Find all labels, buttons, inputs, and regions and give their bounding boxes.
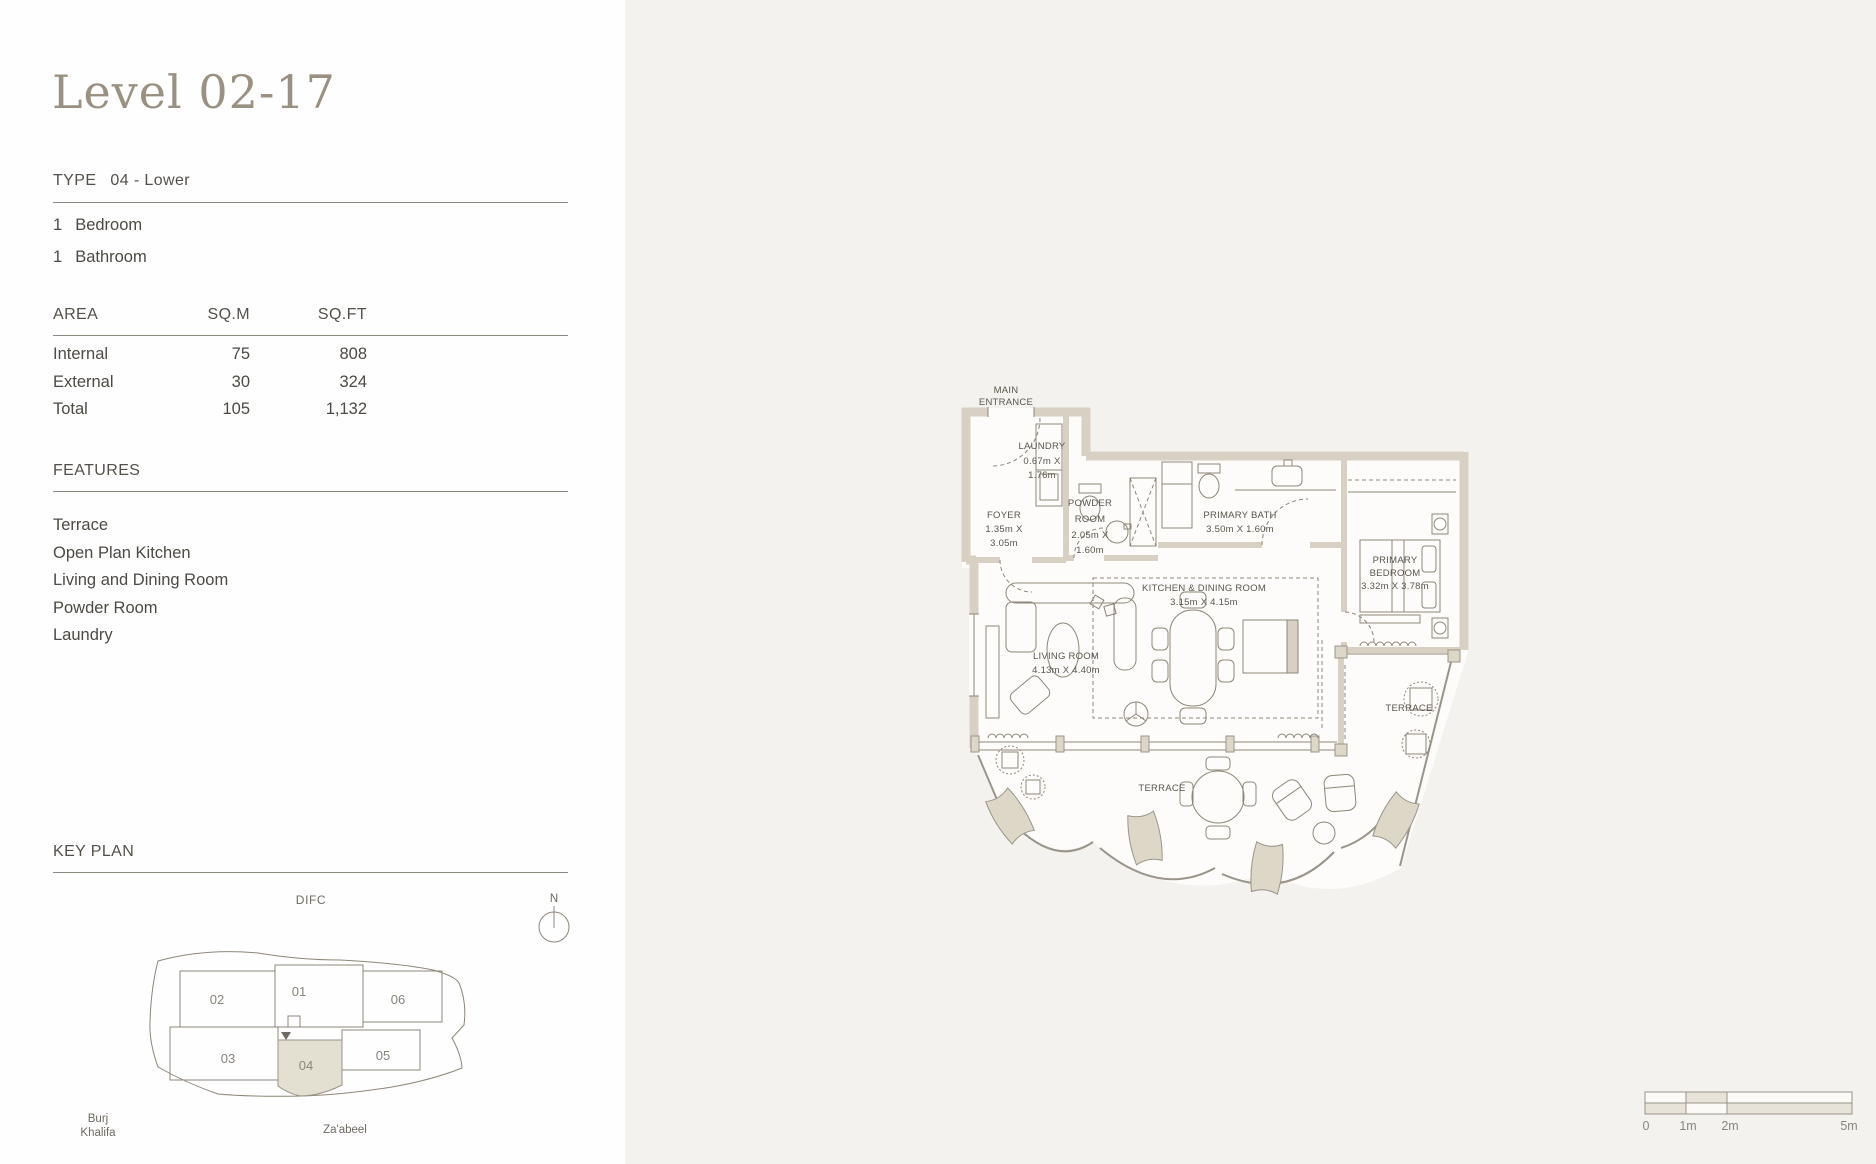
table-row: Internal 75 808 (53, 341, 367, 369)
area-col-label: AREA (53, 306, 167, 324)
foyer-dims: 3.05m (990, 538, 1018, 549)
unit-type-label: TYPE (53, 172, 96, 189)
area-table-header: AREA SQ.M SQ.FT (53, 306, 568, 336)
area-row-sqm: 105 (167, 396, 250, 424)
area-col-sqft: SQ.FT (250, 306, 367, 324)
key-plan-drawing: 02 01 06 03 04 05 (120, 945, 480, 1110)
area-col-sqm: SQ.M (167, 306, 250, 324)
area-row-sqft: 1,132 (250, 396, 367, 424)
primary-bath-label: PRIMARY BATH (1203, 510, 1276, 521)
scale-bar-labels: 0 1m 2m 5m (1643, 1119, 1858, 1133)
bathroom-label: Bathroom (75, 248, 147, 266)
main-entrance-label: MAIN (994, 385, 1019, 396)
room-counts: 1Bedroom 1Bathroom (53, 209, 147, 273)
laundry-dims: 0.67m X (1023, 456, 1061, 467)
page: Level 02-17 TYPE04 - Lower 1Bedroom 1Bat… (0, 0, 1876, 1164)
area-row-sqm: 30 (167, 369, 250, 397)
keyplan-unit-01: 01 (292, 984, 306, 999)
bedroom-label: Bedroom (75, 216, 142, 234)
terrace-main-label: TERRACE (1138, 783, 1185, 794)
difc-label: DIFC (261, 893, 361, 907)
keyplan-unit-04: 04 (299, 1058, 313, 1073)
laundry-dims: 1.76m (1028, 470, 1056, 481)
scale-label-2m: 2m (1721, 1119, 1738, 1133)
area-row-sqft: 808 (250, 341, 367, 369)
keyplan-unit-02: 02 (210, 992, 224, 1007)
features-header: FEATURES (53, 462, 568, 492)
list-item: Laundry (53, 622, 228, 650)
powder-room-dims: 2.05m X (1071, 530, 1109, 541)
area-row-sqft: 324 (250, 369, 367, 397)
scale-bar-segments (1645, 1092, 1852, 1114)
list-item: Terrace (53, 512, 228, 540)
bedroom-count: 1 (53, 216, 62, 234)
primary-bedroom-label: PRIMARY (1373, 555, 1418, 566)
scale-bar: 0 1m 2m 5m (1638, 1084, 1863, 1144)
list-item: Open Plan Kitchen (53, 540, 228, 568)
laundry-label: LAUNDRY (1019, 441, 1066, 452)
area-row-label: External (53, 369, 167, 397)
unit-marker-icon (281, 1032, 291, 1040)
table-row: Total 105 1,132 (53, 396, 367, 424)
primary-bath-dims: 3.50m X 1.60m (1206, 524, 1274, 535)
scale-label-0: 0 (1643, 1119, 1650, 1133)
foyer-dims: 1.35m X (985, 524, 1023, 535)
unit-type-value: 04 - Lower (110, 172, 190, 189)
table-row: External 30 324 (53, 369, 367, 397)
list-item: Living and Dining Room (53, 567, 228, 595)
bedroom-count-line: 1Bedroom (53, 209, 147, 241)
floor-plan: MAIN ENTRANCE LAUNDRY 0.67m X 1.76m FOYE… (955, 378, 1485, 908)
area-row-label: Total (53, 396, 167, 424)
landmark-burj-khalifa: Burj Khalifa (56, 1112, 140, 1140)
area-table-body: Internal 75 808 External 30 324 Total 10… (53, 341, 367, 424)
kitchen-label: KITCHEN & DINING ROOM (1142, 583, 1266, 594)
primary-bedroom-label: BEDROOM (1370, 568, 1421, 579)
living-room-dims: 4.13m X 4.40m (1032, 665, 1100, 676)
powder-room-label: ROOM (1075, 514, 1106, 525)
living-room-label: LIVING ROOM (1033, 651, 1099, 662)
landmark-line: Khalifa (56, 1126, 140, 1140)
area-row-label: Internal (53, 341, 167, 369)
page-title: Level 02-17 (52, 65, 336, 119)
primary-bedroom-dims: 3.32m X 3.78m (1361, 581, 1429, 592)
foyer-label: FOYER (987, 510, 1021, 521)
keyplan-unit-03: 03 (221, 1051, 235, 1066)
bathroom-count: 1 (53, 248, 62, 266)
powder-room-dims: 1.60m (1076, 545, 1104, 556)
scale-label-1m: 1m (1679, 1119, 1696, 1133)
north-letter: N (550, 893, 558, 905)
unit-type-row: TYPE04 - Lower (53, 172, 568, 203)
terrace-right-label: TERRACE (1385, 703, 1432, 714)
keyplan-header: KEY PLAN (53, 843, 568, 873)
landmark-line: Burj (56, 1112, 140, 1126)
west-window (969, 614, 979, 696)
area-row-sqm: 75 (167, 341, 250, 369)
scale-label-5m: 5m (1840, 1119, 1857, 1133)
bathroom-count-line: 1Bathroom (53, 241, 147, 273)
keyplan-unit-06: 06 (391, 992, 405, 1007)
landmark-zaabeel: Za'abeel (303, 1123, 387, 1137)
north-compass: N (524, 886, 584, 946)
main-entrance-label: ENTRANCE (979, 397, 1033, 408)
keyplan-unit-05: 05 (376, 1048, 390, 1063)
kitchen-dims: 3.15m X 4.15m (1170, 597, 1238, 608)
features-list: Terrace Open Plan Kitchen Living and Din… (53, 512, 228, 650)
powder-room-label: POWDER (1068, 498, 1112, 509)
list-item: Powder Room (53, 595, 228, 623)
keyplan-unit-labels: 02 01 06 03 04 05 (210, 984, 405, 1073)
